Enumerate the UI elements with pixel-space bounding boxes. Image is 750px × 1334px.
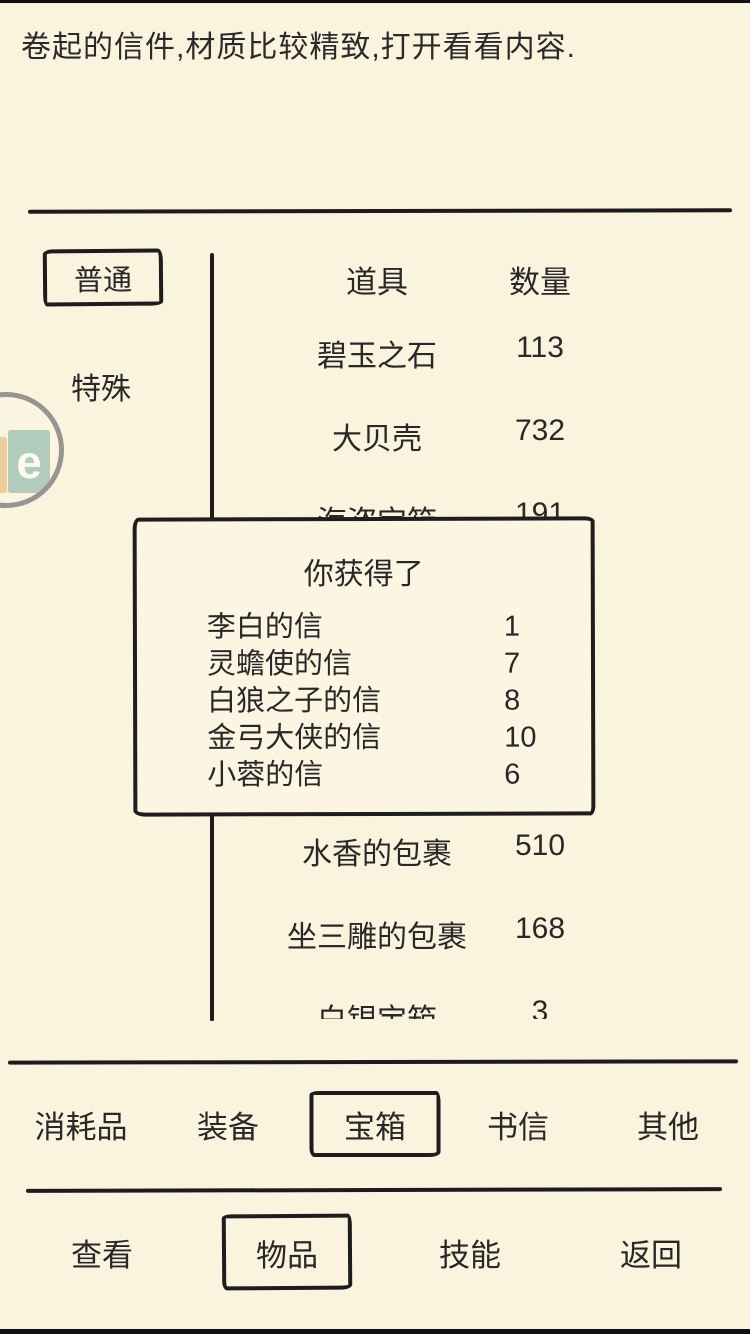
item-name: 水香的包裹 (232, 829, 522, 873)
action-view[interactable]: 查看 (71, 1214, 133, 1290)
reward-popup-title: 你获得了 (137, 548, 591, 593)
reward-quantity: 8 (504, 683, 520, 720)
tab-treasure-chest[interactable]: 宝箱 (310, 1091, 441, 1157)
reward-row: 灵蟾使的信 7 (207, 645, 575, 683)
action-back[interactable]: 返回 (620, 1214, 682, 1290)
watermark-orange-shape (0, 437, 7, 493)
reward-name: 李白的信 (207, 611, 323, 643)
tab-equipment[interactable]: 装备 (197, 1091, 259, 1157)
reward-name: 白狼之子的信 (207, 685, 381, 717)
divider-lower (26, 1187, 722, 1193)
action-items[interactable]: 物品 (222, 1214, 353, 1291)
watermark-letter: e (8, 430, 50, 493)
reward-name: 小蓉的信 (207, 759, 323, 791)
column-header-item: 道具 (232, 257, 522, 302)
item-quantity: 732 (498, 414, 582, 448)
column-header-quantity: 数量 (498, 257, 582, 302)
item-quantity: 113 (498, 331, 582, 365)
item-quantity: 3 (498, 995, 582, 1019)
reward-name: 灵蟾使的信 (207, 648, 352, 680)
item-name: 白银宝箱 (232, 995, 522, 1019)
reward-row: 李白的信 1 (207, 608, 575, 646)
reward-quantity: 7 (504, 646, 520, 683)
reward-quantity: 1 (504, 609, 520, 646)
reward-name: 金弓大侠的信 (207, 722, 381, 754)
divider-middle (8, 1059, 738, 1064)
item-name: 碧玉之石 (232, 331, 522, 375)
game-screen: 卷起的信件,材质比较精致,打开看看内容. 普通 特殊 道具 数量 碧玉之石 11… (0, 0, 750, 1334)
tab-consumables[interactable]: 消耗品 (35, 1091, 128, 1157)
item-quantity: 168 (498, 912, 582, 946)
reward-row: 小蓉的信 6 (207, 756, 575, 794)
item-name: 大贝壳 (232, 414, 522, 458)
reward-row: 金弓大侠的信 10 (207, 719, 575, 757)
item-name: 坐三雕的包裹 (232, 912, 522, 956)
inventory-list: 道具 数量 碧玉之石 113 大贝壳 732 海盗宝箱 191 水香的包裹 51… (0, 0, 750, 1019)
reward-popup[interactable]: 你获得了 李白的信 1 灵蟾使的信 7 白狼之子的信 8 金弓大侠的信 10 小… (133, 516, 596, 816)
reward-row: 白狼之子的信 8 (207, 682, 575, 720)
tab-others[interactable]: 其他 (637, 1091, 699, 1157)
reward-quantity: 6 (504, 757, 520, 794)
action-skills[interactable]: 技能 (439, 1214, 501, 1290)
reward-quantity: 10 (504, 720, 536, 757)
item-quantity: 510 (498, 829, 582, 863)
tab-letters[interactable]: 书信 (487, 1091, 549, 1157)
bottom-edge-bar (0, 1329, 750, 1334)
